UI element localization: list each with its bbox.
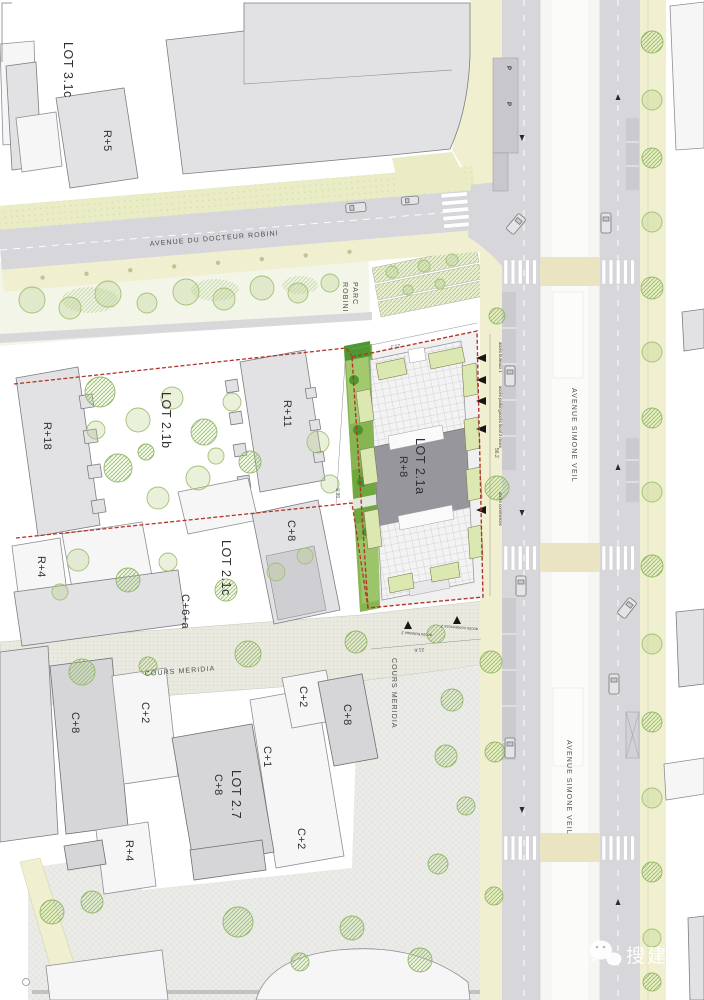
tree xyxy=(418,260,430,272)
dimension-south: 21.6 xyxy=(414,646,424,653)
zebra-bar xyxy=(609,260,613,284)
tree xyxy=(87,421,105,439)
tree xyxy=(642,212,662,232)
tree xyxy=(642,342,662,362)
tree xyxy=(173,279,199,305)
car-icon xyxy=(401,196,419,205)
tree xyxy=(386,266,398,278)
dimension-east: 56.2 xyxy=(493,448,499,458)
access-label-parking: accès parking xyxy=(498,386,503,413)
zebra-bar xyxy=(518,260,522,284)
tree xyxy=(208,448,224,464)
tree xyxy=(307,431,329,453)
car-icon xyxy=(505,366,515,386)
zebra-bar xyxy=(511,260,515,284)
tree xyxy=(642,862,662,882)
label-lot-2-1c: LOT 2.1c xyxy=(219,540,233,596)
planter xyxy=(468,525,483,559)
access-label-bureaux1: accès bureaux 1 xyxy=(498,342,503,373)
dimension-west: 56.8 xyxy=(335,488,342,498)
label-r18: R+18 xyxy=(41,422,53,450)
tree xyxy=(345,631,367,653)
tree xyxy=(85,377,115,407)
tree xyxy=(441,689,463,711)
watermark-text: 搜建筑 xyxy=(626,945,689,967)
median-crossing xyxy=(540,543,600,572)
tree xyxy=(643,973,661,991)
parking-sign: P xyxy=(505,102,511,106)
access-label-velos: accès local 2 roues xyxy=(498,412,503,448)
tree xyxy=(489,308,505,324)
tree xyxy=(435,745,457,767)
label-r4-south: R+4 xyxy=(123,840,135,862)
tree xyxy=(485,887,503,905)
median-crossing xyxy=(540,257,600,286)
street-furniture-icon xyxy=(23,979,30,986)
buildings-east-margin xyxy=(664,2,704,1000)
zebra-bar xyxy=(624,836,628,860)
tree xyxy=(213,288,235,310)
building-tooth xyxy=(309,419,320,430)
site-plan-page: LOT 3.1c R+5 AVENUE DU DOCTEUR ROBINI PA… xyxy=(0,0,704,1000)
parking-sign: P xyxy=(505,66,511,70)
median-platform xyxy=(553,292,583,378)
label-r5: R+5 xyxy=(101,130,113,152)
tree xyxy=(40,900,64,924)
zebra-bar xyxy=(504,546,508,570)
label-parc-robini-1: PARC xyxy=(351,282,358,305)
label-c8-lot27: C+8 xyxy=(212,774,224,796)
label-avenue-simone-veil-upper: AVENUE SIMONE VEIL xyxy=(570,388,577,483)
label-parc-robini-2: ROBINI xyxy=(341,282,348,313)
building xyxy=(16,112,62,172)
building-tooth xyxy=(87,464,102,479)
label-r8: R+8 xyxy=(397,456,409,478)
building-r5 xyxy=(56,88,138,188)
tree xyxy=(485,476,509,500)
tree xyxy=(428,854,448,874)
tree xyxy=(446,254,458,266)
tree xyxy=(457,797,475,815)
zebra-bar xyxy=(533,836,537,860)
car-icon xyxy=(609,674,619,694)
building xyxy=(682,309,704,351)
tree xyxy=(641,277,663,299)
lot-2-1a-site xyxy=(336,323,490,649)
tree xyxy=(250,276,274,300)
label-cours-meridia-v: COURS MERIDIA xyxy=(390,658,397,729)
tree xyxy=(191,419,217,445)
tree xyxy=(116,568,140,592)
tree xyxy=(104,454,132,482)
building-c2-west xyxy=(112,668,178,784)
tree xyxy=(642,634,662,654)
zebra-bar xyxy=(526,546,530,570)
parking-bay xyxy=(626,118,639,190)
tree xyxy=(642,712,662,732)
building-tooth xyxy=(305,387,316,398)
zebra-bar xyxy=(631,260,635,284)
tree xyxy=(223,907,253,937)
garden-tree xyxy=(353,425,363,435)
planter xyxy=(462,363,478,397)
zebra-bar xyxy=(616,260,620,284)
zebra-bar xyxy=(602,546,606,570)
tree xyxy=(408,948,432,972)
parking-strip xyxy=(493,153,508,191)
zebra-bar xyxy=(533,260,537,284)
tree xyxy=(267,563,285,581)
zebra-bar xyxy=(533,546,537,570)
zebra-bar xyxy=(518,546,522,570)
zebra-bar xyxy=(504,836,508,860)
tree xyxy=(291,953,309,971)
zebra-bar xyxy=(504,260,508,284)
zebra-bar xyxy=(631,546,635,570)
tree xyxy=(81,891,103,913)
zebra-bar xyxy=(609,546,613,570)
site-plan-drawing: LOT 3.1c R+5 AVENUE DU DOCTEUR ROBINI PA… xyxy=(0,0,704,1000)
building-tooth xyxy=(229,411,243,425)
label-r4-north: R+4 xyxy=(35,556,47,578)
building xyxy=(670,2,704,150)
label-lot-2-1b: LOT 2.1b xyxy=(159,392,173,449)
tree xyxy=(95,281,121,307)
tree xyxy=(239,451,261,473)
label-lot-3-1c: LOT 3.1c xyxy=(61,42,75,98)
tree xyxy=(19,287,45,313)
building-tooth xyxy=(225,379,239,393)
tree xyxy=(642,482,662,502)
zebra-bar xyxy=(526,260,530,284)
car-icon xyxy=(601,213,611,233)
label-avenue-simone-veil-lower: AVENUE SIMONE VEIL xyxy=(565,740,572,835)
tree xyxy=(223,393,241,411)
zebra-bar xyxy=(511,836,515,860)
tree xyxy=(126,408,150,432)
building xyxy=(0,646,58,842)
tree xyxy=(59,297,81,319)
parking-bay xyxy=(626,438,639,502)
tree xyxy=(235,641,261,667)
building xyxy=(688,916,704,1000)
zebra-bar xyxy=(609,836,613,860)
tree xyxy=(642,90,662,110)
label-c6a: C+6+a xyxy=(179,594,191,630)
label-r11: R+11 xyxy=(281,400,293,427)
dimension-north: 21.3 xyxy=(390,342,401,350)
planter xyxy=(464,417,480,451)
tree xyxy=(137,293,157,313)
zebra-bar xyxy=(616,836,620,860)
car-icon xyxy=(505,738,515,758)
zebra-bar xyxy=(631,836,635,860)
label-c8-lot21c: C+8 xyxy=(285,520,297,542)
tree xyxy=(485,742,505,762)
tree xyxy=(67,549,89,571)
tree xyxy=(52,584,68,600)
tree xyxy=(642,408,662,428)
tree xyxy=(288,283,308,303)
tree xyxy=(643,929,661,947)
tree xyxy=(297,548,313,564)
zebra-bar xyxy=(518,836,522,860)
tree xyxy=(642,148,662,168)
zebra-bar xyxy=(602,260,606,284)
label-c2-west: C+2 xyxy=(139,702,151,724)
car-icon xyxy=(516,576,526,596)
parking-bay xyxy=(502,598,516,760)
access-label-commerces: accès commerces xyxy=(498,492,503,526)
car-icon xyxy=(346,202,367,213)
zebra-bar xyxy=(526,836,530,860)
label-c8-east: C+8 xyxy=(341,704,353,726)
tree xyxy=(403,285,413,295)
tree xyxy=(641,555,663,577)
building xyxy=(166,3,470,174)
building-north-center xyxy=(166,3,470,174)
building-tooth xyxy=(91,499,106,514)
roof-element xyxy=(408,347,426,363)
zebra-bar xyxy=(602,836,606,860)
building xyxy=(676,609,704,687)
building xyxy=(664,758,704,800)
tree xyxy=(186,466,210,490)
tree xyxy=(480,651,502,673)
zebra-bar xyxy=(624,546,628,570)
tree xyxy=(641,31,663,53)
tree xyxy=(147,487,169,509)
tree xyxy=(321,274,339,292)
tree xyxy=(340,916,364,940)
zebra-bar xyxy=(624,260,628,284)
label-lot-2-1a: LOT 2.1a xyxy=(413,438,427,495)
tree xyxy=(69,659,95,685)
label-c2-north: C+2 xyxy=(297,686,309,708)
label-lot-2-7: LOT 2.7 xyxy=(229,770,243,819)
median-crossing xyxy=(540,833,600,862)
tree xyxy=(435,279,445,289)
label-c8-west: C+8 xyxy=(69,712,81,734)
zebra-bar xyxy=(511,546,515,570)
tree xyxy=(159,553,177,571)
label-c2-south: C+2 xyxy=(295,828,307,850)
tree xyxy=(138,444,154,460)
tree xyxy=(642,788,662,808)
label-c1: C+1 xyxy=(261,746,273,768)
zebra-bar xyxy=(616,546,620,570)
